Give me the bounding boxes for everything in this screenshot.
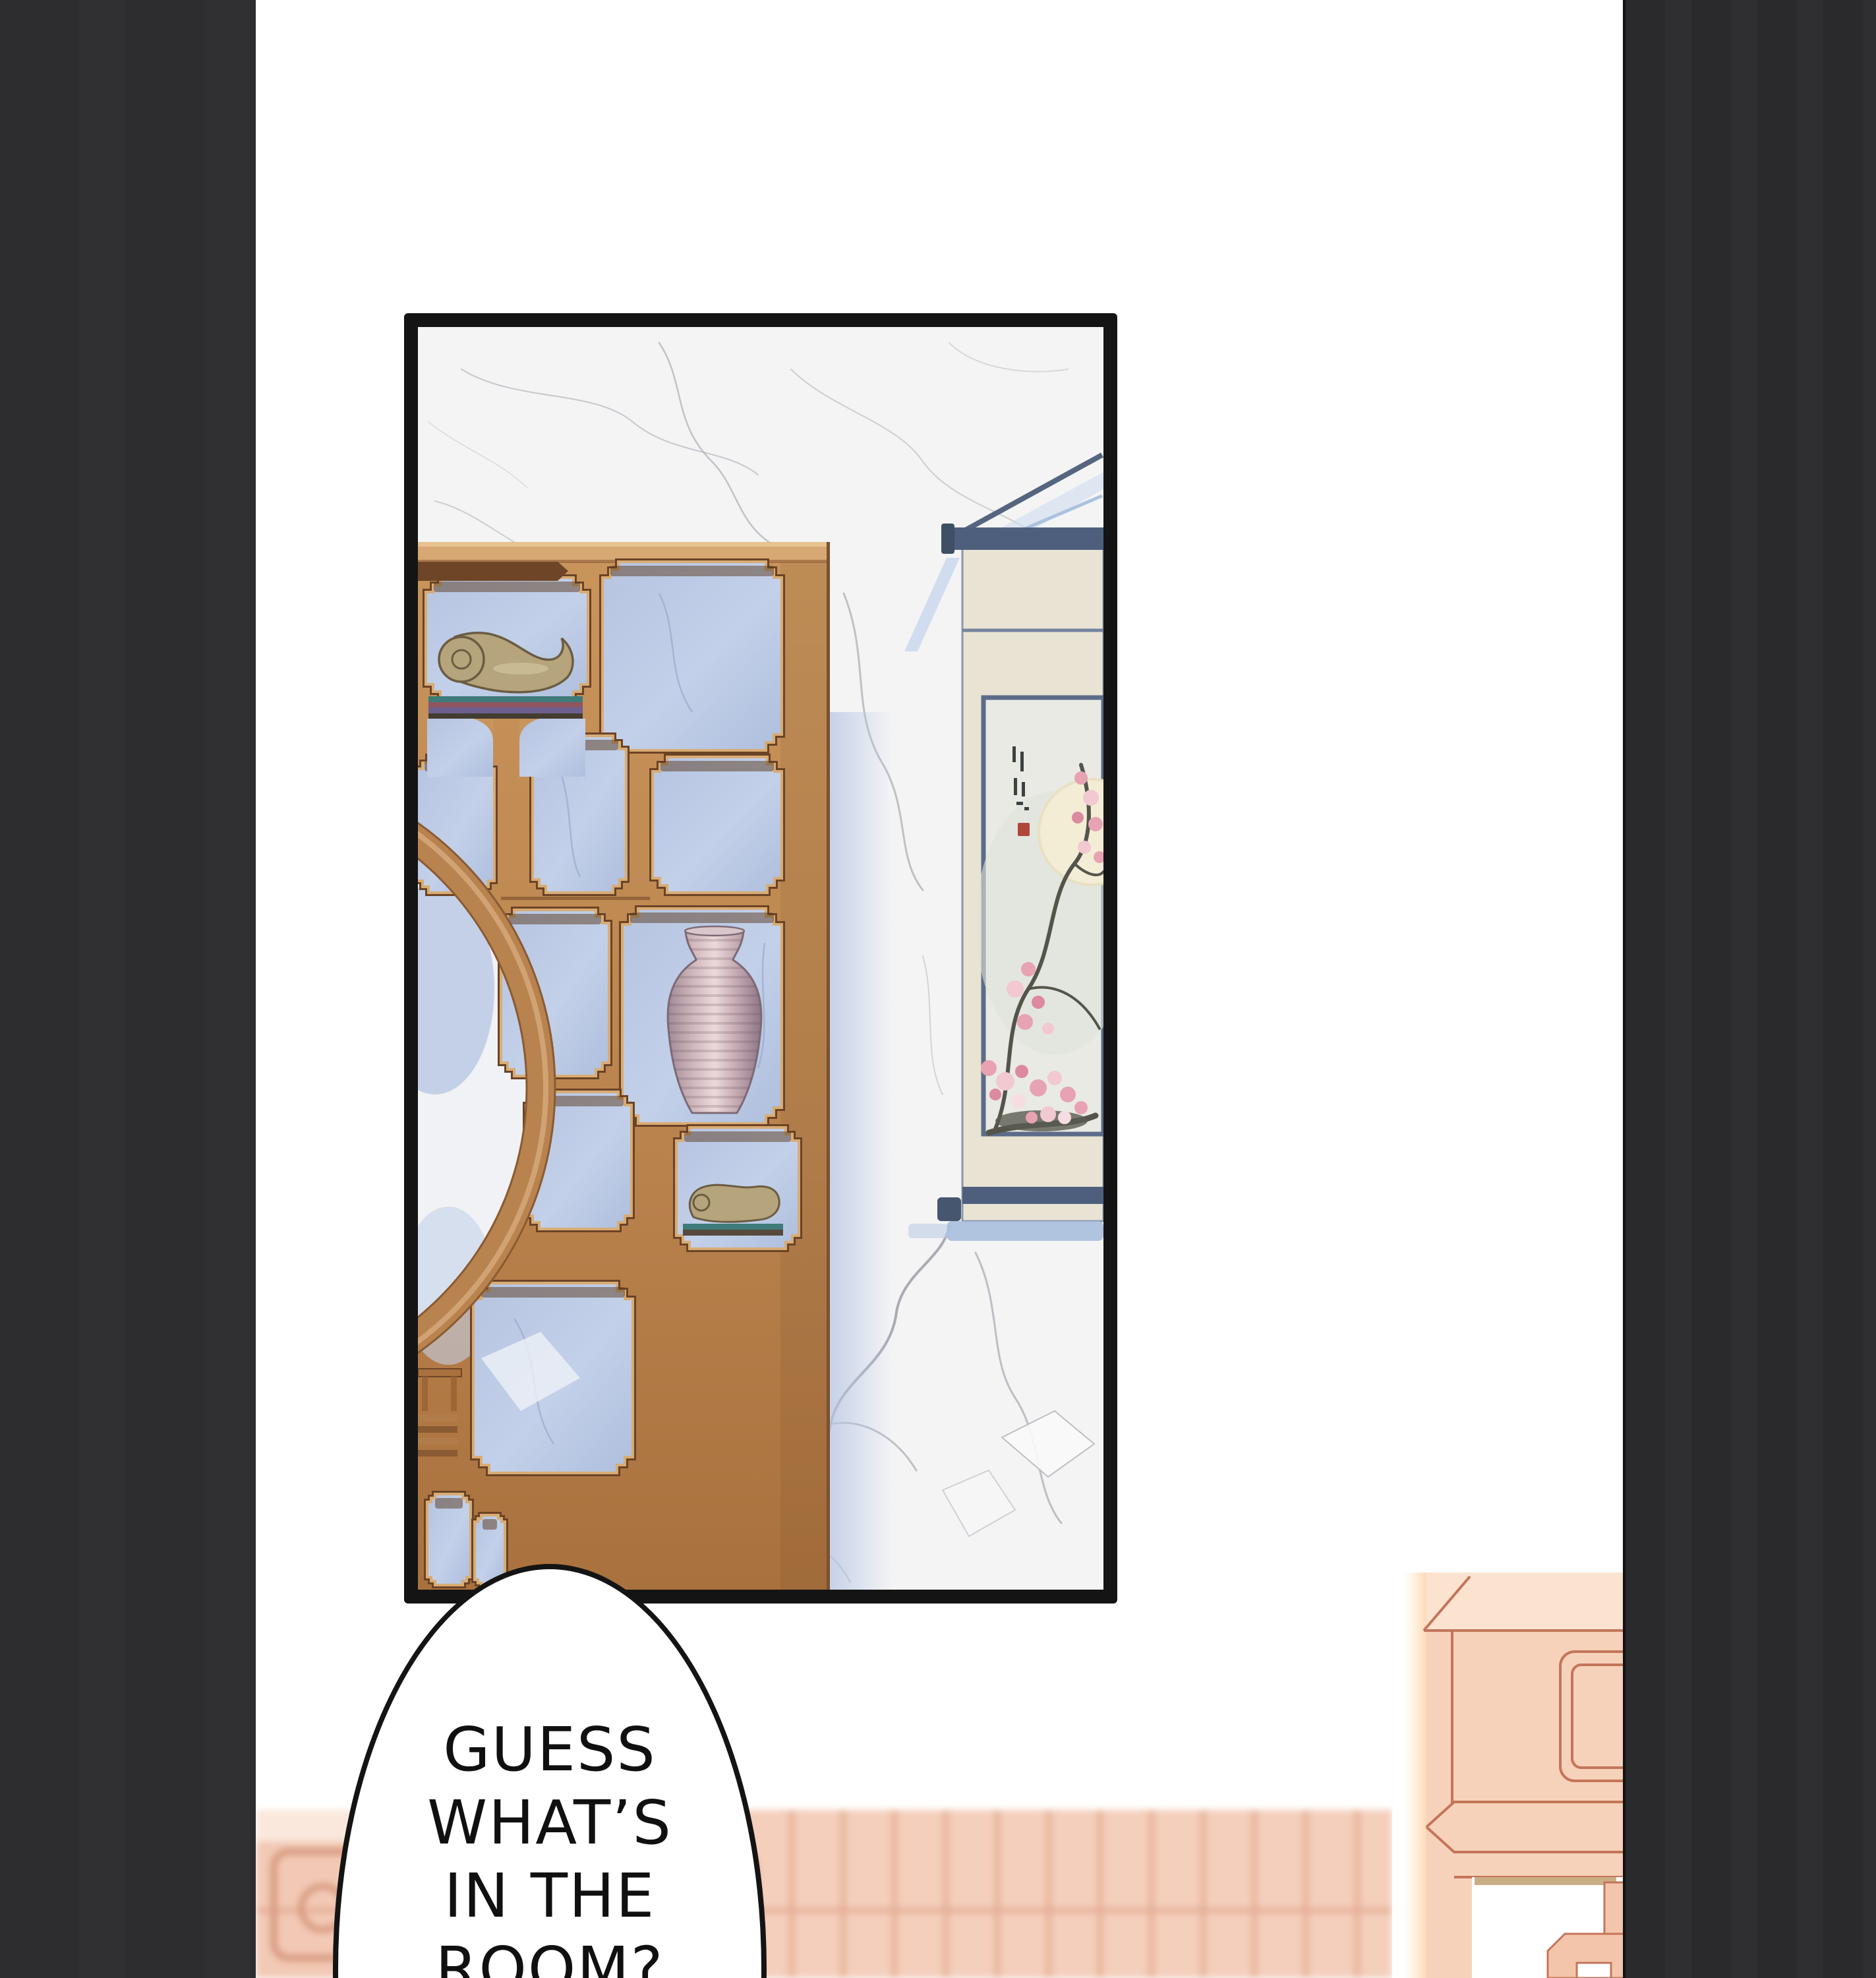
cabinet-panel	[1560, 1652, 1626, 1781]
frieze-slats	[744, 1810, 1392, 1978]
comic-page: GUESS WHAT’S IN THE ROOM?	[0, 0, 1876, 1978]
left-letterbox-bar	[0, 0, 256, 1978]
bubble-line: GUESS	[427, 1713, 672, 1786]
bubble-line: WHAT’S	[427, 1786, 672, 1859]
speech-text: GUESS WHAT’S IN THE ROOM?	[427, 1713, 672, 1978]
cabinet-opening	[1472, 1877, 1626, 1978]
right-letterbox-bar	[1623, 0, 1876, 1978]
bubble-line: IN THE	[427, 1859, 672, 1933]
cabinet-linework	[1392, 1573, 1626, 1978]
side-cabinet	[1392, 1573, 1626, 1978]
comic-panel	[404, 313, 1117, 1603]
speech-bubble: GUESS WHAT’S IN THE ROOM?	[333, 1564, 767, 1978]
bubble-line: ROOM?	[427, 1933, 672, 1978]
